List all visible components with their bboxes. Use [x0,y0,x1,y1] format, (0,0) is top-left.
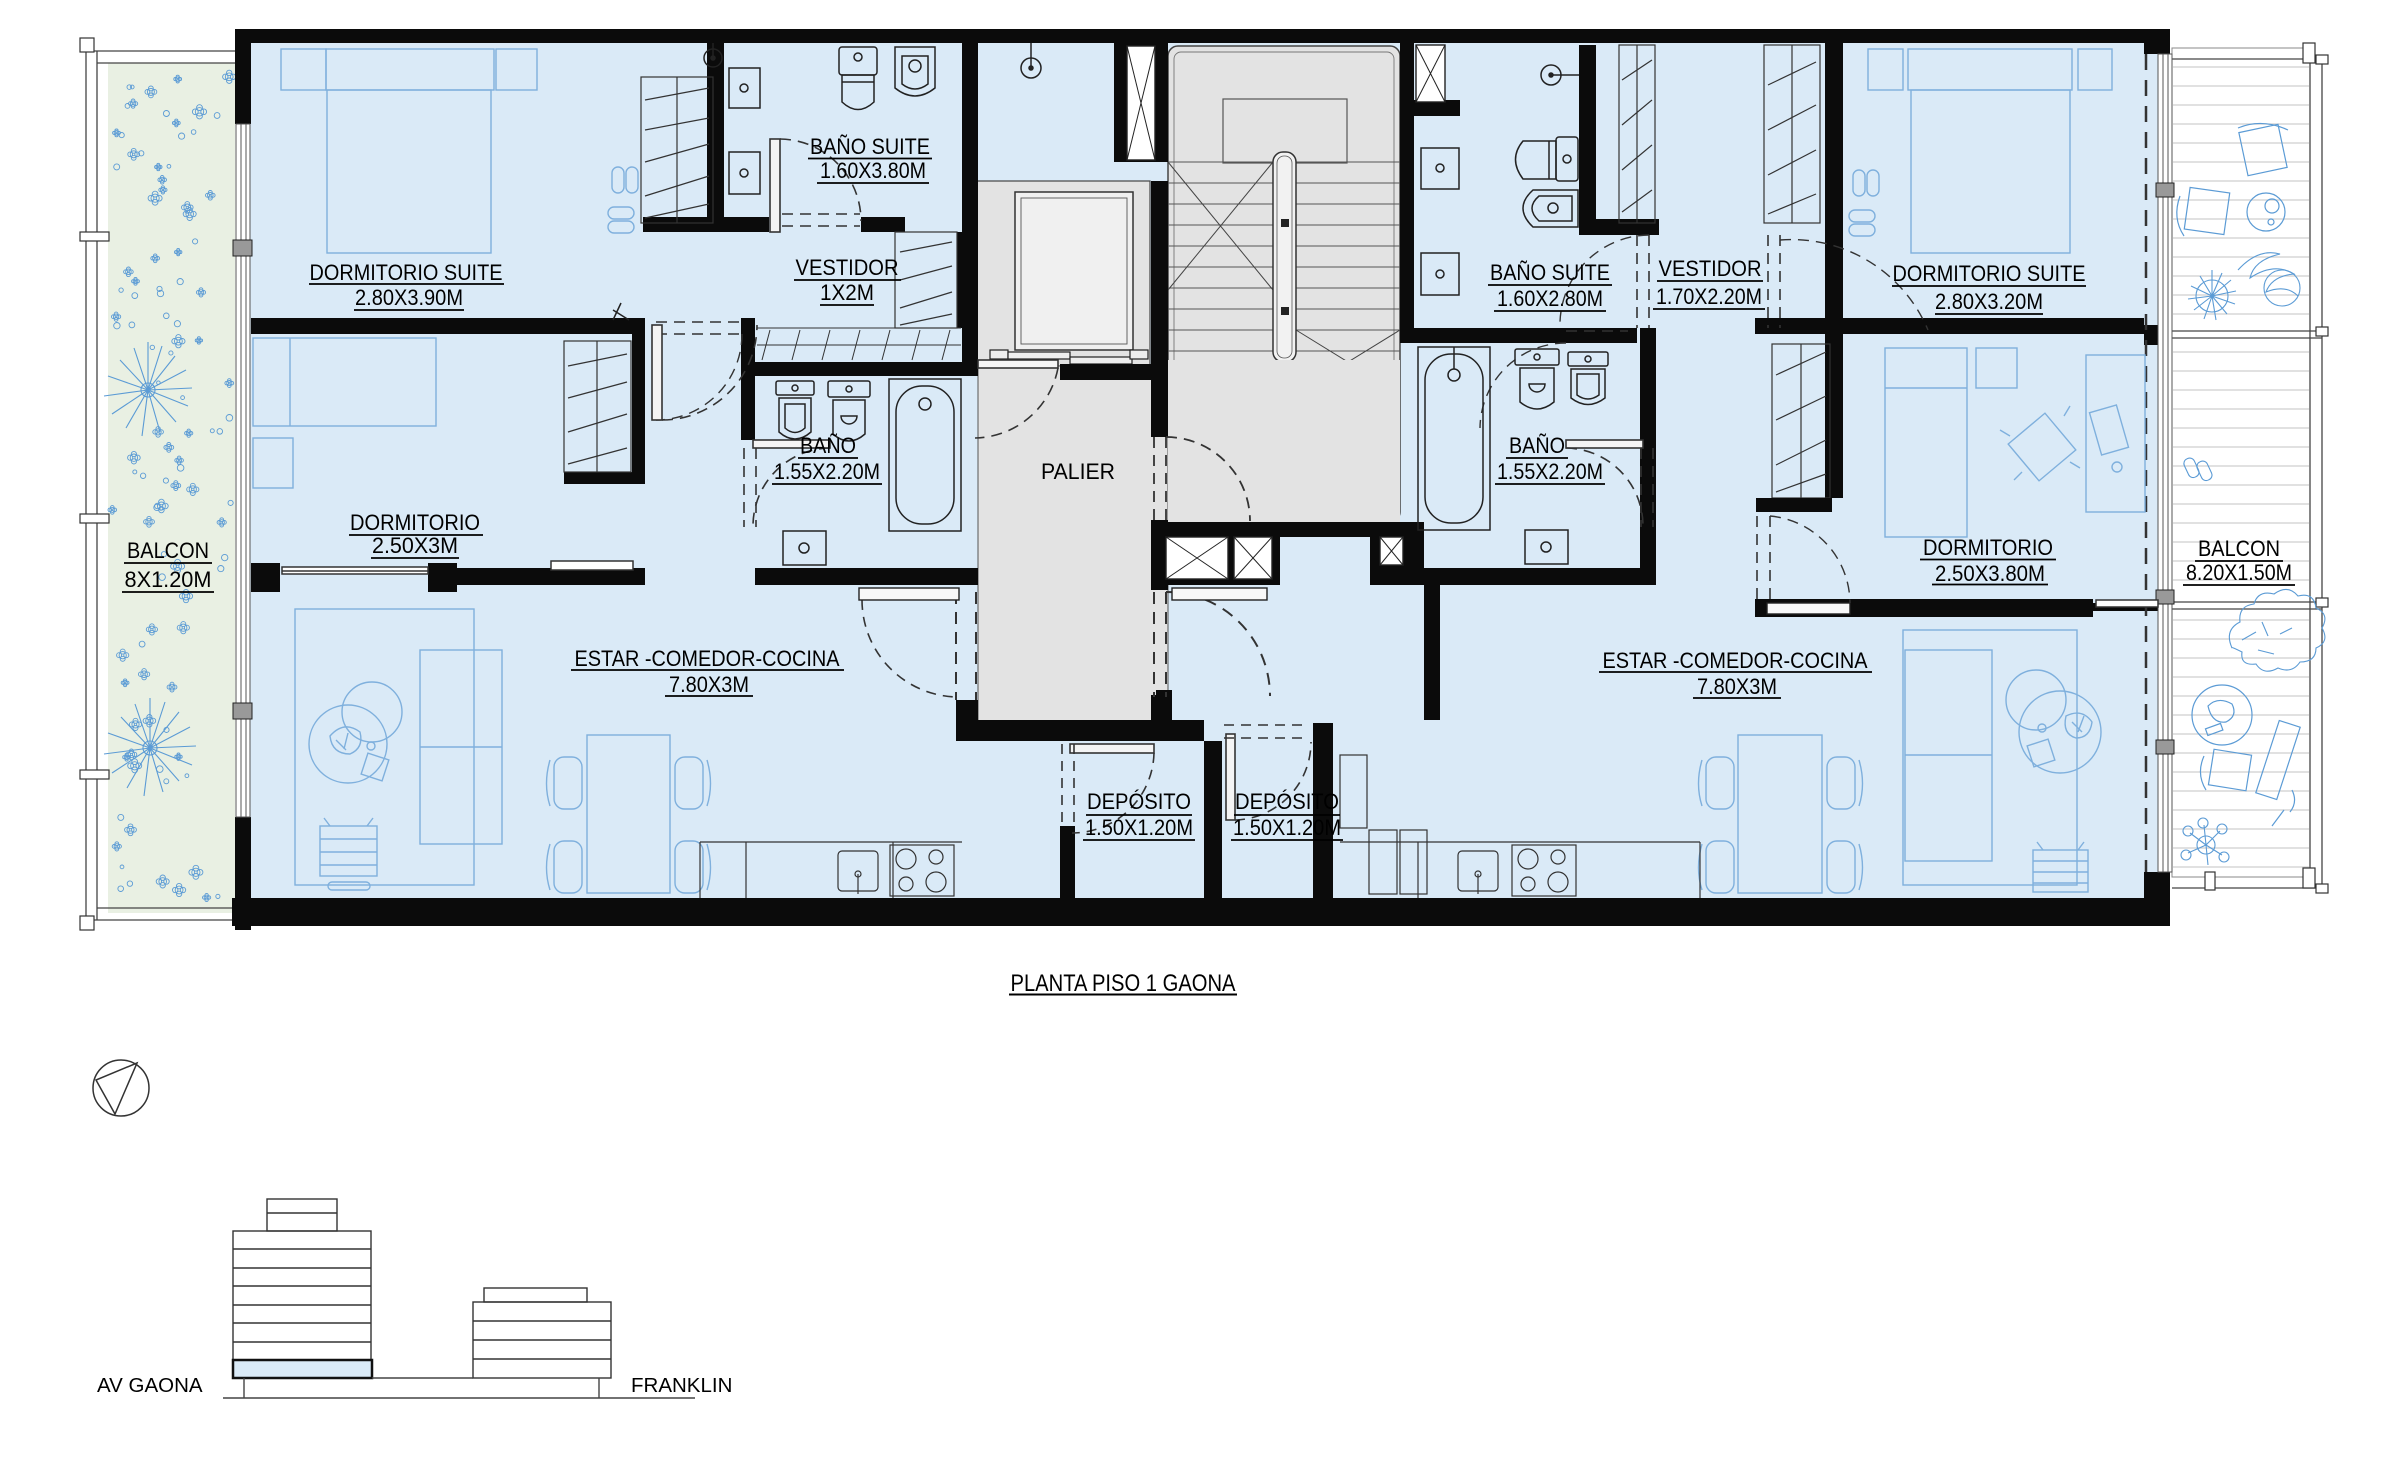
svg-text:DEPÓSITO: DEPÓSITO [1087,789,1191,814]
svg-text:1X2M: 1X2M [820,280,874,305]
svg-text:1.60X3.80M: 1.60X3.80M [820,158,926,183]
svg-text:PALIER: PALIER [1041,459,1115,484]
svg-text:VESTIDOR: VESTIDOR [1659,256,1762,281]
svg-text:ESTAR -COMEDOR-COCINA: ESTAR -COMEDOR-COCINA [575,646,840,671]
svg-text:VESTIDOR: VESTIDOR [796,255,899,280]
svg-text:8X1.20M: 8X1.20M [125,567,212,592]
svg-text:AV GAONA: AV GAONA [97,1374,203,1397]
svg-text:1.50X1.20M: 1.50X1.20M [1233,815,1341,840]
svg-text:PLANTA PISO 1 GAONA: PLANTA PISO 1 GAONA [1011,970,1236,997]
svg-text:DORMITORIO: DORMITORIO [1923,535,2053,560]
svg-text:DORMITORIO SUITE: DORMITORIO SUITE [310,260,503,285]
svg-text:1.50X1.20M: 1.50X1.20M [1085,815,1193,840]
svg-text:7.80X3M: 7.80X3M [669,672,749,697]
svg-text:2.50X3.80M: 2.50X3.80M [1935,561,2045,586]
svg-text:DORMITORIO SUITE: DORMITORIO SUITE [1893,261,2086,286]
svg-text:BALCON: BALCON [2198,536,2280,561]
svg-text:FRANKLIN: FRANKLIN [631,1374,732,1397]
svg-text:7.80X3M: 7.80X3M [1697,674,1777,699]
svg-text:8.20X1.50M: 8.20X1.50M [2186,560,2292,585]
svg-text:BALCON: BALCON [127,538,209,563]
svg-text:2.80X3.90M: 2.80X3.90M [355,285,463,310]
svg-text:2.80X3.20M: 2.80X3.20M [1935,289,2043,314]
svg-text:BAÑO: BAÑO [800,433,856,458]
svg-text:2.50X3M: 2.50X3M [372,533,458,558]
svg-text:ESTAR -COMEDOR-COCINA: ESTAR -COMEDOR-COCINA [1603,648,1868,673]
svg-text:DEPÓSITO: DEPÓSITO [1235,789,1339,814]
svg-text:DORMITORIO: DORMITORIO [350,510,480,535]
svg-text:1.55X2.20M: 1.55X2.20M [774,459,880,484]
svg-text:BAÑO SUITE: BAÑO SUITE [810,134,930,159]
svg-text:1.70X2.20M: 1.70X2.20M [1656,284,1762,309]
svg-text:BAÑO SUITE: BAÑO SUITE [1490,260,1610,285]
svg-text:BAÑO: BAÑO [1509,433,1565,458]
svg-text:1.55X2.20M: 1.55X2.20M [1497,459,1603,484]
svg-text:1.60X2.80M: 1.60X2.80M [1497,286,1603,311]
